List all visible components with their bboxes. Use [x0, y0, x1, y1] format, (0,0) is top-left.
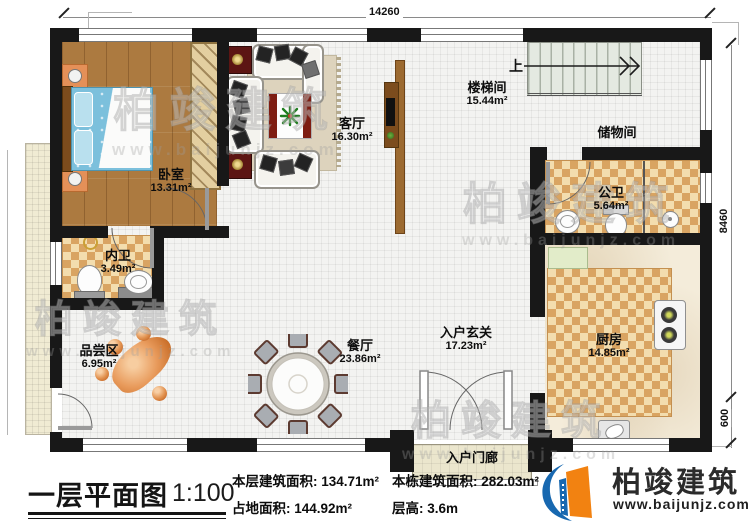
extension-line	[88, 12, 132, 13]
window	[79, 28, 192, 42]
window	[421, 28, 523, 42]
page-title: 一层平面图	[28, 474, 168, 513]
floor-plan-canvas: 14260 8460 600	[0, 0, 750, 531]
room-label-stair-hall: 楼梯间 15.44m²	[467, 81, 508, 107]
lamp-icon	[68, 172, 82, 186]
wall-segment	[582, 147, 712, 160]
room-area: 16.30m²	[332, 131, 373, 143]
stat-total-area: 本栋建筑面积: 282.03m²	[392, 470, 539, 490]
room-name: 餐厅	[340, 339, 381, 353]
stat-land-area: 占地面积: 144.92m²	[232, 497, 352, 517]
extension-line	[88, 12, 89, 28]
room-label-public-bath: 公卫 5.64m²	[594, 186, 629, 212]
cutting-board-icon	[548, 247, 588, 269]
plant-icon	[387, 132, 394, 139]
wall-segment	[530, 233, 712, 245]
room-label-dining-room: 餐厅 23.86m²	[340, 339, 381, 365]
wall-segment	[365, 438, 404, 452]
rug-fringe	[336, 57, 341, 167]
room-name: 厨房	[589, 333, 630, 347]
dimension-line-right	[731, 45, 732, 448]
decor-ball-icon	[152, 386, 167, 401]
terrace-door	[48, 382, 108, 437]
table-medallion	[232, 54, 243, 65]
wall-segment	[700, 28, 712, 60]
room-name: 内卫	[101, 249, 136, 263]
wall-segment	[530, 393, 545, 452]
window	[257, 438, 365, 452]
stat-value: 134.71m²	[321, 474, 379, 489]
sink-basin	[130, 275, 147, 289]
stat-label: 占地面积:	[232, 501, 291, 516]
shower-head	[668, 217, 672, 221]
table-medallion	[232, 159, 243, 170]
wall-segment	[367, 28, 421, 42]
entry-double-door	[402, 365, 530, 437]
brand-website: www.baijunjz.com	[613, 496, 750, 512]
room-name: 入户玄关	[440, 326, 492, 340]
coffee-table-icon	[268, 93, 312, 139]
burner-icon	[661, 307, 677, 323]
room-name: 储物间	[597, 126, 636, 140]
dimension-right-value: 8460	[718, 209, 730, 233]
stat-label: 层高:	[392, 501, 424, 516]
dimension-top-value: 14260	[366, 6, 403, 18]
room-label-entry-porch: 入户门廊	[446, 451, 498, 465]
table-edge	[269, 94, 277, 138]
room-name: 卧室	[151, 168, 192, 182]
room-label-tasting-area: 品尝区 6.95m²	[79, 344, 118, 370]
room-area: 17.23m²	[440, 340, 492, 352]
brand-logo-icon	[536, 458, 610, 524]
wall-segment	[523, 28, 712, 42]
room-name: 公卫	[594, 186, 629, 200]
sink-icon	[555, 210, 580, 234]
room-name: 楼梯间	[467, 81, 508, 95]
window	[573, 438, 669, 452]
cushion-icon	[278, 159, 295, 176]
tv-icon	[386, 98, 395, 126]
room-label-private-bath: 内卫 3.49m²	[101, 249, 136, 275]
stat-label: 本栋建筑面积:	[392, 474, 478, 489]
room-name: 入户门廊	[446, 451, 498, 465]
wall-segment	[187, 438, 257, 452]
pillow-icon	[74, 130, 93, 165]
room-name: 客厅	[332, 117, 373, 131]
lamp-icon	[68, 69, 82, 83]
room-area: 14.85m²	[589, 347, 630, 359]
window	[83, 438, 187, 452]
room-area: 13.31m²	[151, 182, 192, 194]
stat-floor-area: 本层建筑面积: 134.71m²	[232, 470, 379, 490]
stove-icon	[654, 300, 686, 350]
stat-label: 本层建筑面积:	[232, 474, 318, 489]
window	[257, 28, 367, 42]
burner-icon	[661, 327, 677, 343]
drawing-scale: 1:100	[172, 479, 235, 508]
room-label-bedroom: 卧室 13.31m²	[151, 168, 192, 194]
shower-divider	[643, 161, 645, 233]
bed-blanket	[98, 88, 150, 168]
wall-segment	[50, 298, 164, 310]
plant-icon	[278, 104, 302, 128]
room-label-living-room: 客厅 16.30m²	[332, 117, 373, 143]
wall-segment	[62, 226, 108, 238]
wall-segment	[50, 28, 62, 242]
room-label-storage: 储物间	[597, 126, 636, 140]
room-name: 品尝区	[79, 344, 118, 358]
room-area: 5.64m²	[594, 200, 629, 212]
stairs-up-label: 上	[509, 56, 523, 76]
pillow-icon	[74, 92, 93, 127]
public-bath-door	[538, 155, 598, 210]
sink-basin	[560, 215, 575, 228]
room-area: 15.44m²	[467, 95, 508, 107]
extension-line	[738, 22, 739, 45]
shower-icon	[662, 211, 679, 228]
room-label-entry-foyer: 入户玄关 17.23m²	[440, 326, 492, 352]
stat-value: 144.92m²	[294, 501, 352, 516]
room-area: 6.95m²	[79, 358, 118, 370]
table-edge	[303, 94, 311, 138]
wall-segment	[217, 40, 229, 186]
room-area: 23.86m²	[340, 353, 381, 365]
decor-ball-icon	[136, 326, 151, 341]
stat-value: 3.6m	[427, 501, 458, 516]
window	[700, 60, 712, 130]
window	[50, 242, 62, 285]
title-underline	[28, 518, 226, 519]
extension-line	[712, 22, 739, 23]
stat-value: 282.03m²	[481, 474, 539, 489]
title-underline	[28, 512, 226, 515]
room-label-kitchen: 厨房 14.85m²	[589, 333, 630, 359]
room-area: 3.49m²	[101, 263, 136, 275]
brand-name: 柏竣建筑	[612, 459, 740, 501]
dining-table-set-icon	[248, 334, 348, 434]
property-line	[7, 150, 8, 435]
stat-story-height: 层高: 3.6m	[392, 497, 458, 517]
dimension-right-lower-value: 600	[719, 409, 731, 427]
window	[700, 173, 712, 203]
